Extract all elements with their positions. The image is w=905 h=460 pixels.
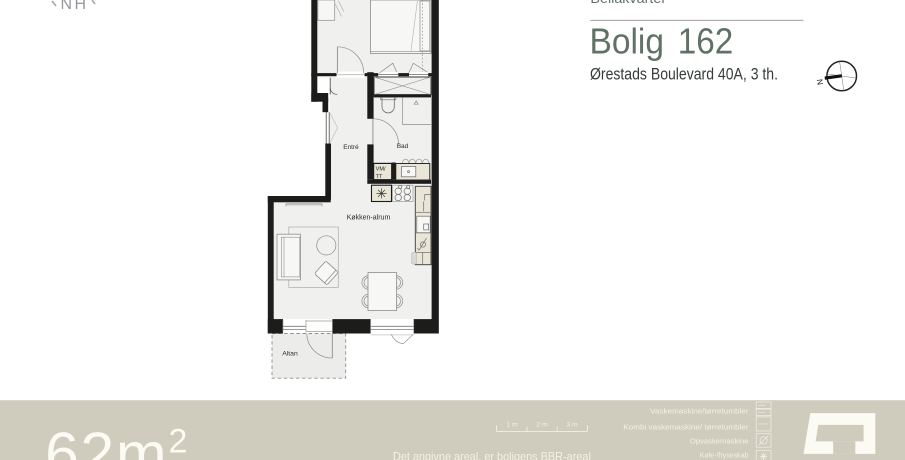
svg-text:Altan: Altan <box>282 350 298 357</box>
svg-text:Det angivne areal, er boligens: Det angivne areal, er boligens BBR-areal <box>393 449 591 460</box>
svg-text:Kombi vaskemaskine/ tørretumbl: Kombi vaskemaskine/ tørretumbler <box>623 422 749 431</box>
svg-text:Bellakvarter: Bellakvarter <box>590 0 666 6</box>
svg-text:Opvaskemaskine: Opvaskemaskine <box>690 437 749 446</box>
svg-text:NH: NH <box>61 0 89 13</box>
svg-text:2: 2 <box>169 423 188 460</box>
svg-text:Ørestads Boulevard 40A, 3 th.: Ørestads Boulevard 40A, 3 th. <box>590 66 778 84</box>
svg-text:Bolig: Bolig <box>590 21 665 62</box>
svg-text:2 m: 2 m <box>536 422 548 429</box>
svg-text:Vaskemaskine/tørretumbler: Vaskemaskine/tørretumbler <box>650 406 749 415</box>
svg-text:TT: TT <box>376 174 383 180</box>
svg-text:Entré: Entré <box>343 144 359 151</box>
svg-text:1 m: 1 m <box>506 422 518 429</box>
svg-text:62m: 62m <box>45 420 168 460</box>
svg-text:Køkken-alrum: Køkken-alrum <box>347 215 391 222</box>
svg-text:VM/: VM/ <box>376 167 386 173</box>
svg-text:Køle-/fryseskab: Køle-/fryseskab <box>700 451 749 460</box>
svg-text:162: 162 <box>678 21 734 62</box>
svg-text:3 m: 3 m <box>566 422 578 429</box>
svg-text:Bad: Bad <box>397 143 409 150</box>
